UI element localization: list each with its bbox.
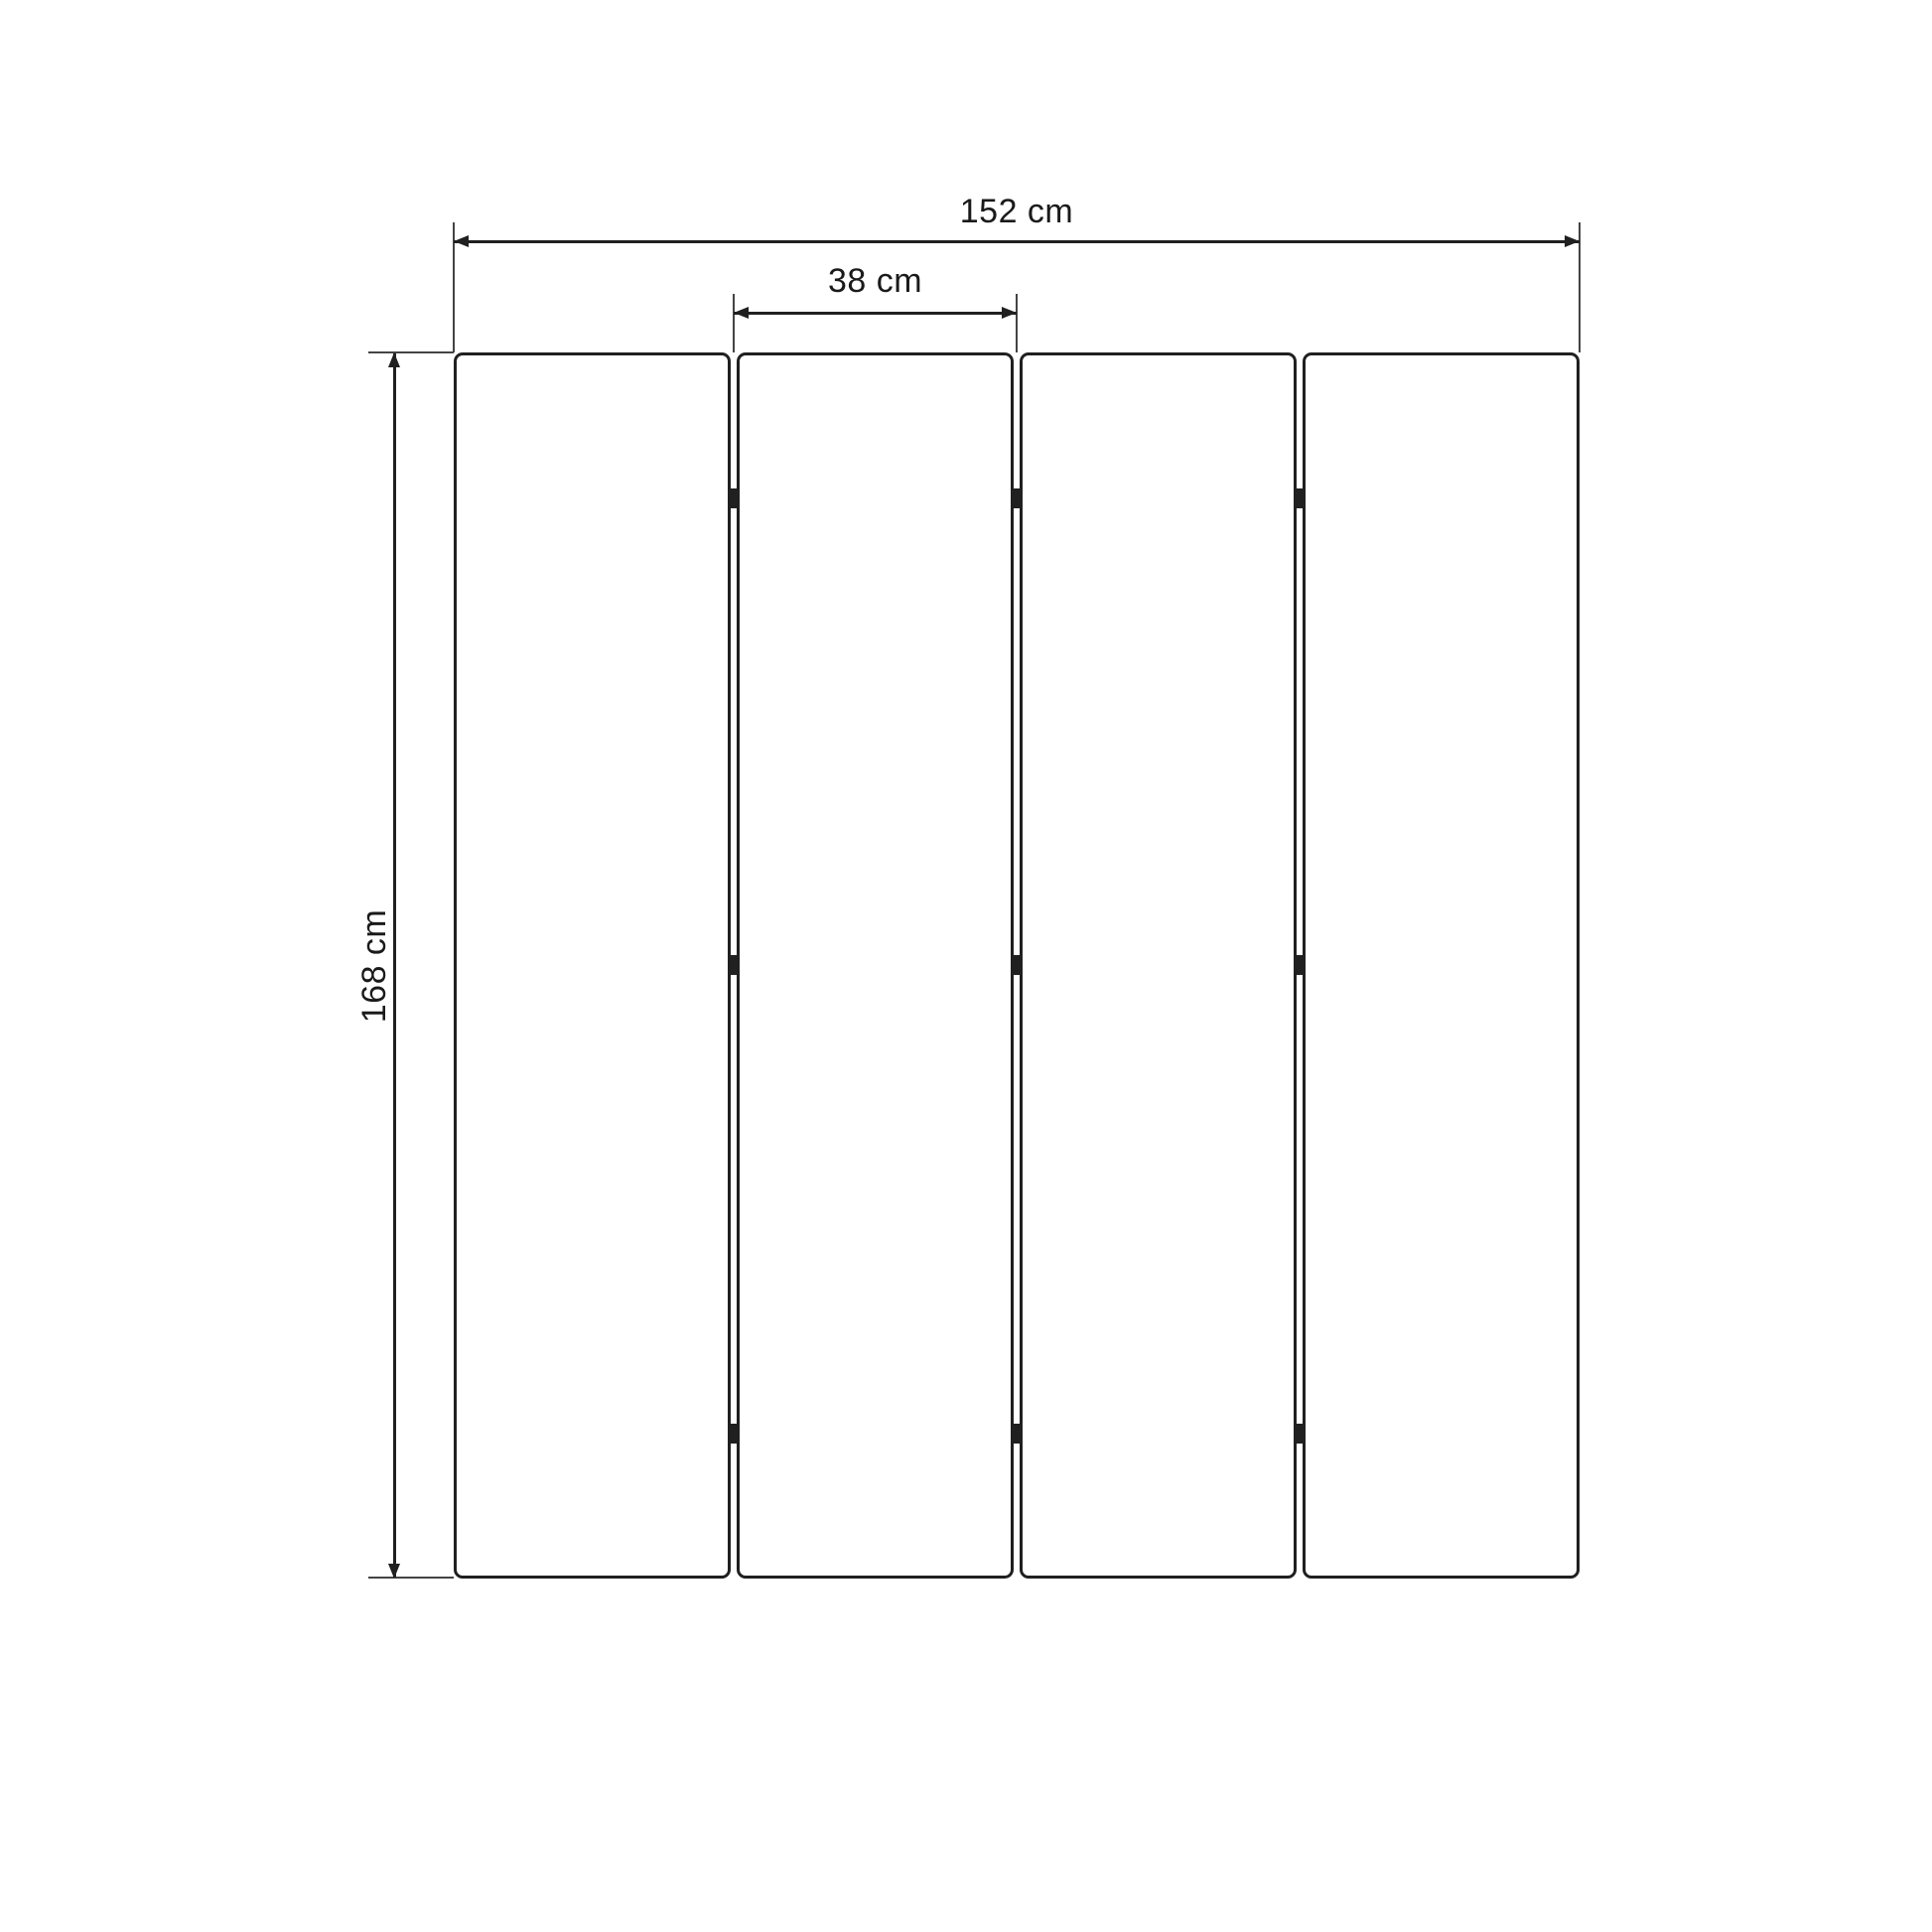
panel-4: [1303, 352, 1580, 1579]
total-width-label: 152 cm: [454, 191, 1580, 232]
arrowhead-down-icon: [388, 1564, 400, 1579]
dimension-line: [734, 312, 1017, 315]
hinge-mark: [1294, 955, 1306, 975]
hinge-mark: [1294, 1424, 1306, 1444]
dimension-diagram: 152 cm 38 cm 168 cm: [0, 0, 1932, 1932]
hinge-mark: [728, 955, 740, 975]
arrowhead-right-icon: [1002, 307, 1017, 319]
panel-1: [454, 352, 731, 1579]
panel-width-label: 38 cm: [734, 260, 1017, 302]
hinge-mark: [728, 488, 740, 508]
extension-line: [733, 294, 735, 352]
dimension-line: [454, 240, 1580, 243]
hinge-mark: [1011, 488, 1023, 508]
arrowhead-left-icon: [454, 235, 469, 247]
extension-line: [368, 351, 454, 353]
arrowhead-up-icon: [388, 352, 400, 367]
extension-line: [368, 1577, 454, 1579]
height-label: 168 cm: [353, 887, 395, 1045]
hinge-mark: [1011, 1424, 1023, 1444]
hinge-mark: [728, 1424, 740, 1444]
panel-3: [1020, 352, 1297, 1579]
extension-line: [1016, 294, 1018, 352]
arrowhead-right-icon: [1565, 235, 1580, 247]
hinge-mark: [1294, 488, 1306, 508]
hinge-mark: [1011, 955, 1023, 975]
arrowhead-left-icon: [734, 307, 749, 319]
panel-2: [737, 352, 1014, 1579]
